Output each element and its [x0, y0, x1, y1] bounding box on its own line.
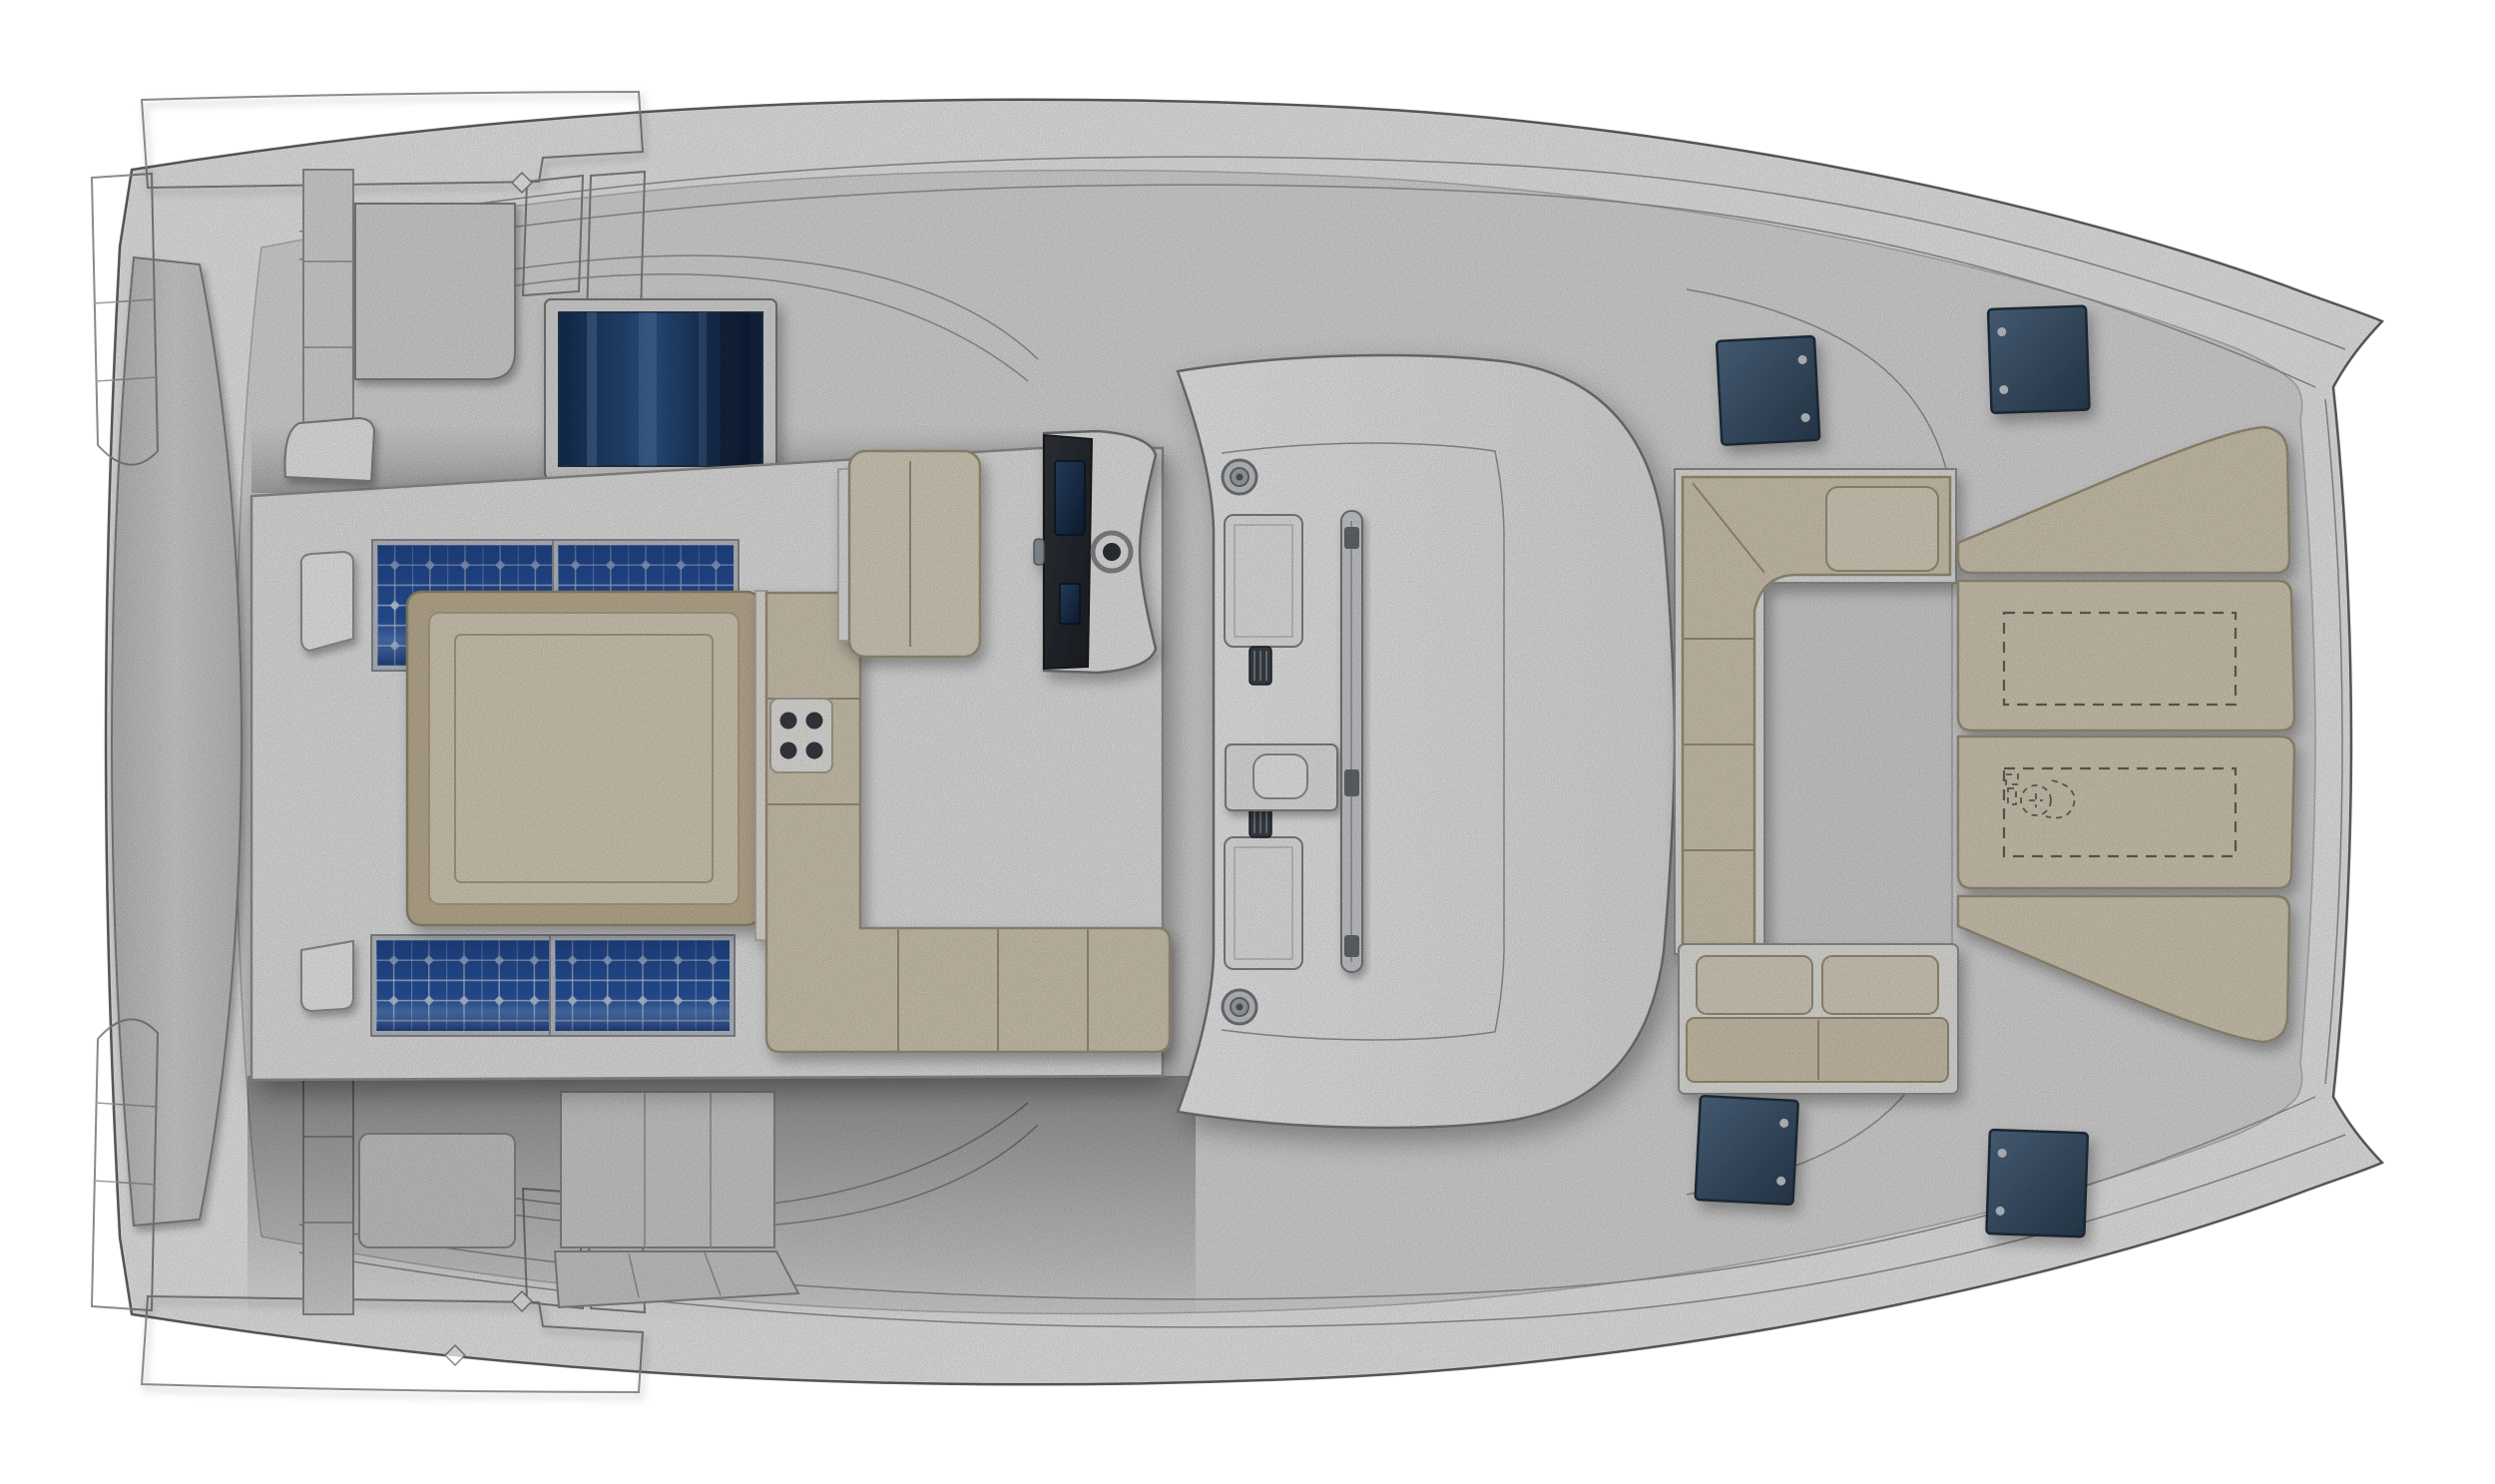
catamaran-deck-plan: [0, 0, 2495, 1484]
texture-overlay: [0, 0, 2495, 1484]
